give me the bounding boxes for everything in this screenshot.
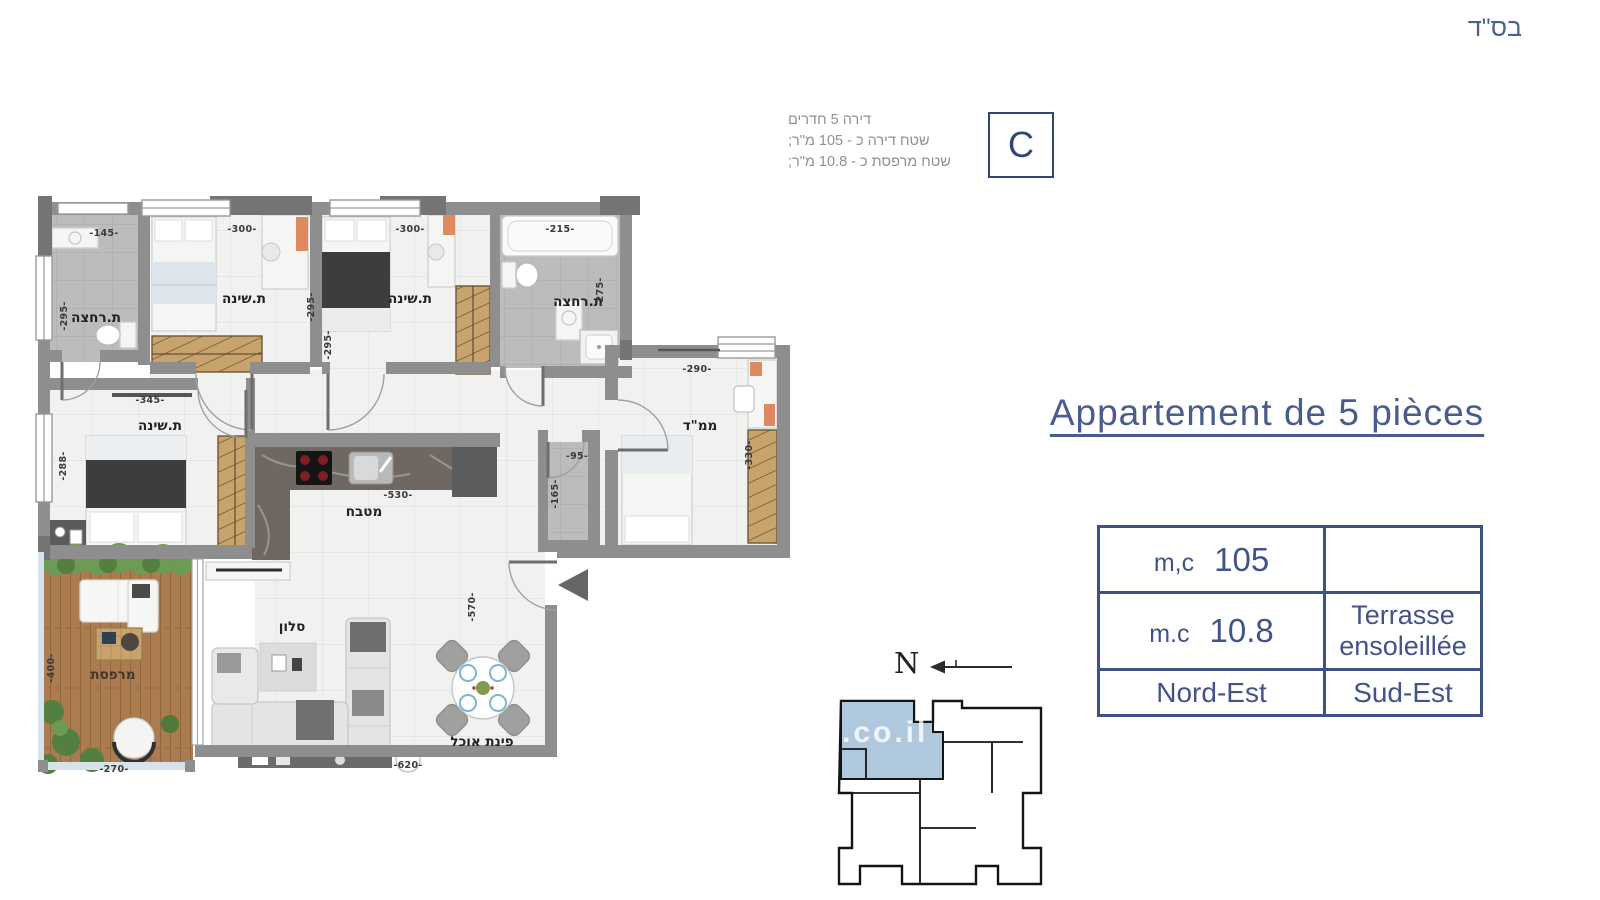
dim-95: -95- <box>566 451 588 462</box>
keyplan: .co.il <box>828 690 1048 892</box>
dim-345: -345- <box>135 395 164 406</box>
north-arrow-icon <box>924 654 1019 680</box>
terrace-area-value: 10.8 <box>1210 612 1274 650</box>
details-table: m,c 105 m.c 10.8 Terrasse ensoleillée No… <box>1097 525 1483 717</box>
dim-295-b: -295- <box>306 292 317 321</box>
table-cell-orientation-2: Sud-Est <box>1323 668 1480 714</box>
terrace-desc-line1: Terrasse <box>1351 600 1455 631</box>
room-label-mamad: ממ"ד <box>683 418 718 434</box>
room-label-bath-top-left: ת.רחצה <box>71 310 121 326</box>
dim-300-b: -300- <box>395 224 424 235</box>
table-cell-empty <box>1323 528 1480 591</box>
unit-letter-box: C <box>988 112 1054 178</box>
room-label-bedroom-1: ת.שינה <box>222 291 266 307</box>
table-cell-orientation-1: Nord-Est <box>1100 668 1323 714</box>
dim-400: -400- <box>46 653 57 682</box>
dim-530: -530- <box>383 490 412 501</box>
dim-295-c: -295- <box>323 330 334 359</box>
table-cell-terrace-desc: Terrasse ensoleillée <box>1323 591 1480 668</box>
dim-300-a: -300- <box>227 224 256 235</box>
keyplan-watermark: .co.il <box>842 716 928 749</box>
dim-570: -570- <box>467 592 478 621</box>
floorplan: ת.רחצה ת.שינה ת.שינה ת.רחצה ממ"ד ת.שינה … <box>30 190 800 780</box>
dim-288: -288- <box>58 451 69 480</box>
dim-620: -620- <box>393 760 422 771</box>
terrace-railing-left <box>38 552 44 764</box>
dim-290: -290- <box>682 364 711 375</box>
entrance-arrow-icon <box>558 569 588 601</box>
table-cell-area: m,c 105 <box>1100 528 1323 591</box>
unit-info-line1: דירה 5 חדרים <box>788 110 974 131</box>
room-label-kitchen: מטבח <box>346 504 382 520</box>
bsd-text: בס"ד <box>1468 14 1522 43</box>
room-label-bedroom-2: ת.שינה <box>388 291 432 307</box>
unit-info-line2: שטח דירה כ - 105 מ"ר; <box>788 131 974 152</box>
dim-270: -270- <box>99 764 128 775</box>
dim-145: -145- <box>89 228 118 239</box>
room-label-terrace: מרפסת <box>90 667 135 683</box>
unit-letter: C <box>1008 124 1034 166</box>
terrace-area-label: m.c <box>1149 620 1189 649</box>
table-cell-terrace-area: m.c 10.8 <box>1100 591 1323 668</box>
room-label-dining: פינת אוכל <box>450 734 513 750</box>
unit-info-line3: שטח מרפסת כ - 10.8 מ"ר; <box>788 152 974 173</box>
room-label-bedroom-3: ת.שינה <box>138 418 182 434</box>
north-label: N <box>894 646 919 680</box>
room-label-living: סלון <box>279 619 306 635</box>
page-title: Appartement de 5 pièces <box>1012 392 1522 434</box>
area-value: 105 <box>1214 541 1269 579</box>
orientation-2: Sud-Est <box>1353 677 1453 709</box>
unit-info-lines: דירה 5 חדרים שטח דירה כ - 105 מ"ר; שטח מ… <box>788 110 974 173</box>
dim-330: -330- <box>744 440 755 469</box>
dim-215: -215- <box>545 224 574 235</box>
dim-275: -275- <box>595 277 606 306</box>
orientation-1: Nord-Est <box>1156 677 1266 709</box>
unit-info-block: דירה 5 חדרים שטח דירה כ - 105 מ"ר; שטח מ… <box>788 110 1054 178</box>
area-label: m,c <box>1154 549 1194 578</box>
dim-295-a: -295- <box>59 301 70 330</box>
terrace-desc-line2: ensoleillée <box>1339 631 1467 662</box>
dim-165: -165- <box>550 479 561 508</box>
